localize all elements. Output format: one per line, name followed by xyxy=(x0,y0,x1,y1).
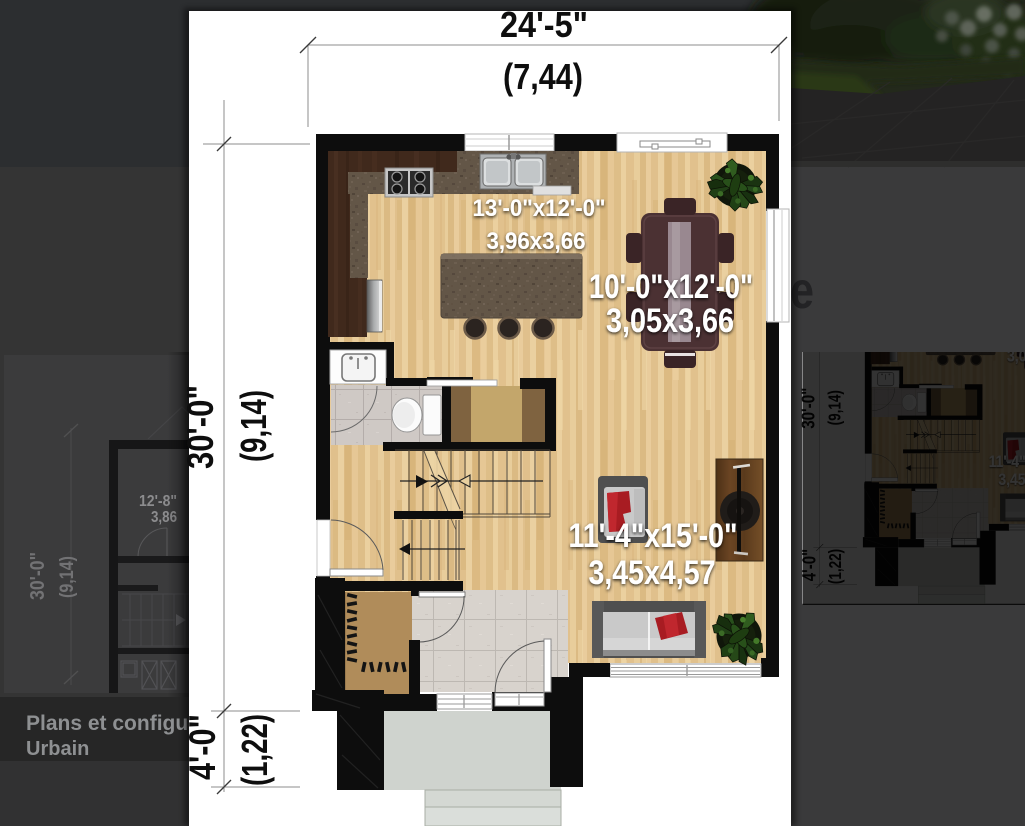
svg-text:(9,14): (9,14) xyxy=(57,556,78,598)
svg-text:Plans et configur: Plans et configur xyxy=(26,712,196,735)
svg-text:30'-0": 30'-0" xyxy=(27,552,49,600)
svg-text:Urbain: Urbain xyxy=(26,738,89,760)
